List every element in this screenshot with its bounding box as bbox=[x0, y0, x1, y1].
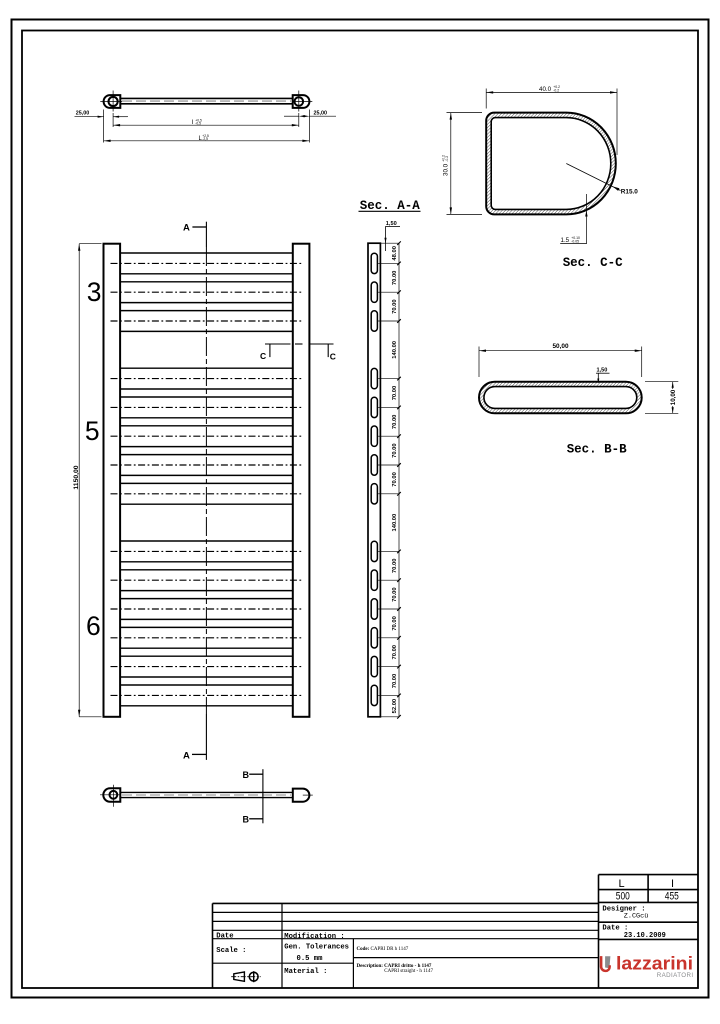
svg-text:70.00: 70.00 bbox=[392, 443, 398, 458]
svg-text:48.00: 48.00 bbox=[392, 246, 398, 261]
svg-text:RADIATORI: RADIATORI bbox=[657, 972, 694, 979]
svg-text:70.00: 70.00 bbox=[392, 271, 398, 286]
svg-text:70.00: 70.00 bbox=[392, 616, 398, 631]
svg-text:A: A bbox=[183, 750, 190, 761]
svg-text:50,00: 50,00 bbox=[553, 343, 569, 350]
svg-text:52.00: 52.00 bbox=[392, 699, 398, 714]
svg-text:1,50: 1,50 bbox=[597, 368, 608, 374]
svg-text:Material :: Material : bbox=[284, 968, 327, 976]
svg-text:70.00: 70.00 bbox=[392, 299, 398, 314]
svg-text:L: L bbox=[618, 878, 624, 890]
svg-text:70.00: 70.00 bbox=[392, 386, 398, 401]
svg-text:23.10.2009: 23.10.2009 bbox=[624, 932, 666, 940]
svg-text:-0,5: -0,5 bbox=[195, 122, 201, 126]
svg-text:1150,00: 1150,00 bbox=[73, 465, 80, 489]
svg-text:Code:: Code: bbox=[357, 947, 370, 952]
svg-text:1.5: 1.5 bbox=[561, 237, 570, 244]
svg-text:6: 6 bbox=[86, 611, 101, 641]
svg-text:B: B bbox=[243, 770, 250, 780]
svg-text:40.0: 40.0 bbox=[539, 86, 552, 93]
svg-text:5: 5 bbox=[85, 416, 100, 446]
svg-text:70.00: 70.00 bbox=[392, 415, 398, 430]
svg-text:I: I bbox=[671, 878, 674, 890]
svg-text:70.00: 70.00 bbox=[392, 645, 398, 660]
svg-text:140.00: 140.00 bbox=[392, 341, 398, 359]
svg-text:C: C bbox=[260, 351, 266, 361]
svg-text:-2,5: -2,5 bbox=[202, 137, 208, 141]
svg-text:Z.CGcü: Z.CGcü bbox=[624, 912, 648, 920]
svg-text:70.00: 70.00 bbox=[392, 674, 398, 689]
svg-text:0.5 mm: 0.5 mm bbox=[297, 955, 324, 963]
svg-text:-0.05: -0.05 bbox=[571, 239, 579, 243]
svg-text:Gen. Tolerances: Gen. Tolerances bbox=[284, 944, 349, 952]
svg-text:3: 3 bbox=[87, 277, 102, 307]
svg-text:455: 455 bbox=[665, 890, 679, 902]
svg-text:A: A bbox=[183, 223, 190, 234]
svg-text:Sec. C-C: Sec. C-C bbox=[563, 255, 623, 270]
svg-text:10,00: 10,00 bbox=[670, 389, 677, 405]
svg-text:25,00: 25,00 bbox=[314, 110, 328, 116]
svg-text:-0.2: -0.2 bbox=[553, 88, 559, 92]
svg-text:CAPRI straight - h 1147: CAPRI straight - h 1147 bbox=[384, 969, 433, 974]
svg-text:140.00: 140.00 bbox=[392, 514, 398, 532]
svg-text:Scale :: Scale : bbox=[216, 947, 246, 955]
svg-text:25,00: 25,00 bbox=[76, 111, 90, 117]
svg-text:70.00: 70.00 bbox=[392, 587, 398, 602]
svg-text:lazzarini: lazzarini bbox=[616, 952, 693, 973]
svg-text:70.00: 70.00 bbox=[392, 472, 398, 487]
svg-text:500: 500 bbox=[616, 890, 630, 902]
svg-text:30.0: 30.0 bbox=[443, 163, 450, 176]
svg-text:-0.2: -0.2 bbox=[445, 156, 449, 162]
svg-text:70.00: 70.00 bbox=[392, 559, 398, 574]
svg-text:R15.0: R15.0 bbox=[621, 189, 638, 196]
svg-text:Date: Date bbox=[216, 932, 233, 940]
svg-text:C: C bbox=[330, 351, 336, 361]
svg-text:CAPRI DR h 1147: CAPRI DR h 1147 bbox=[371, 947, 409, 952]
svg-text:Sec. B-B: Sec. B-B bbox=[567, 442, 627, 457]
svg-text:Modification :: Modification : bbox=[284, 933, 344, 941]
svg-text:B: B bbox=[243, 814, 250, 824]
